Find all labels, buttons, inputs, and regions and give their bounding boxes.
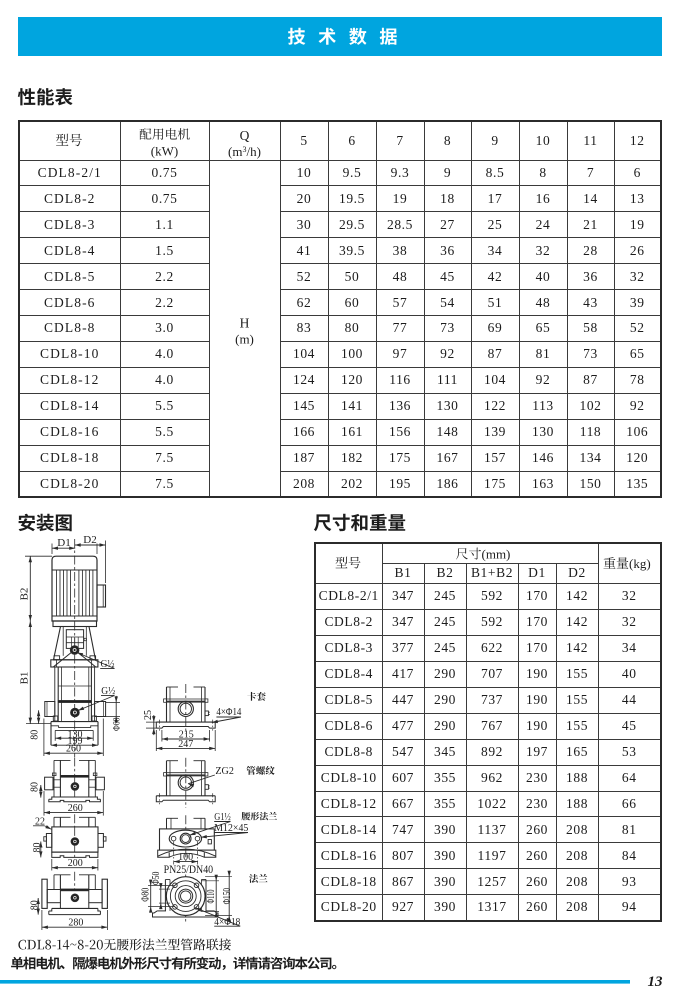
svg-text:280: 280: [68, 918, 83, 929]
svg-text:100: 100: [178, 852, 193, 863]
svg-text:M12×45: M12×45: [214, 822, 248, 834]
svg-text:Φ80: Φ80: [141, 888, 152, 902]
svg-text:B1: B1: [19, 672, 31, 685]
svg-text:D1: D1: [57, 537, 70, 549]
svg-text:260: 260: [66, 744, 81, 755]
svg-text:(mm): (mm): [482, 547, 511, 562]
svg-text:Φ50: Φ50: [151, 872, 162, 886]
svg-text:200: 200: [68, 858, 83, 869]
svg-text:80: 80: [30, 730, 41, 740]
svg-text:Φ60: Φ60: [112, 717, 122, 731]
svg-text:B2: B2: [19, 588, 31, 601]
svg-text:4×Φ18: 4×Φ18: [214, 917, 240, 928]
svg-text:G½: G½: [101, 658, 115, 670]
svg-text:H: H: [240, 316, 250, 331]
svg-text:PN25/DN40: PN25/DN40: [164, 864, 214, 876]
svg-text:ZG2: ZG2: [215, 765, 234, 777]
svg-text:4×Φ14: 4×Φ14: [216, 707, 242, 718]
svg-text:(kW): (kW): [151, 144, 178, 159]
svg-text:80: 80: [32, 843, 43, 853]
svg-text:(m3/h): (m3/h): [228, 144, 261, 159]
svg-text:247: 247: [178, 739, 193, 750]
svg-text:(kg): (kg): [629, 556, 651, 571]
svg-text:260: 260: [68, 803, 83, 814]
svg-text:80: 80: [29, 900, 40, 910]
svg-text:G½: G½: [101, 685, 115, 697]
svg-text:(m): (m): [235, 332, 254, 347]
svg-text:Φ150: Φ150: [222, 888, 233, 905]
svg-text:Q: Q: [240, 128, 250, 143]
svg-text:D2: D2: [83, 534, 96, 546]
svg-text:13: 13: [648, 974, 664, 990]
svg-text:80: 80: [30, 782, 41, 792]
svg-text:Φ110: Φ110: [206, 890, 217, 904]
svg-text:25: 25: [143, 710, 154, 720]
